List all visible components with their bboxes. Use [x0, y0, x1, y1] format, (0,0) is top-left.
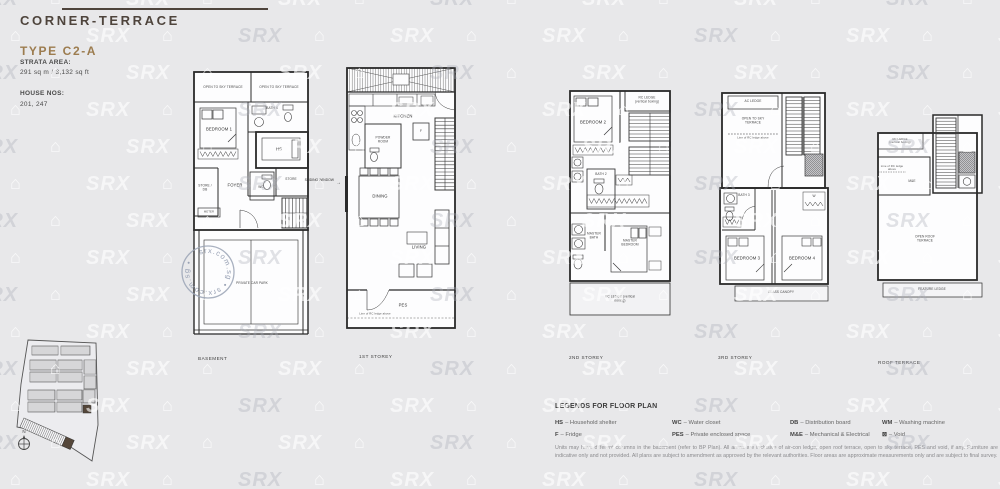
page-title: CORNER-TERRACE [20, 13, 180, 28]
floor-label-3rd-storey: 3RD STOREY [718, 355, 752, 360]
room-label-me: M&E [908, 180, 915, 184]
floor-label-1st-storey: 1ST STOREY [359, 354, 392, 359]
floor-plan-1st-storey: KITCHEN POWDER ROOM F DINING LIVING PES … [343, 60, 461, 366]
room-label-bedroom1: BEDROOM 1 [199, 128, 239, 133]
floor-plan-2nd-storey: BEDROOM 2 RC LEDGE (vertical boxing) BAT… [565, 83, 677, 363]
void-icon: ⊠ [882, 432, 887, 438]
legend-item-wm: WM– Washing machine [882, 420, 945, 426]
floor-plan-sheet: SRX⌂SRX⌂SRX⌂SRX⌂SRX⌂SRX⌂SRX⌂SRX⌂SRX⌂SRX⌂… [0, 0, 1000, 489]
room-label-wardrobe: W [812, 195, 815, 199]
legend-item-db: DB– Distribution board [790, 420, 851, 426]
watermark-layer: SRX⌂SRX⌂SRX⌂SRX⌂SRX⌂SRX⌂SRX⌂SRX⌂SRX⌂SRX⌂… [0, 0, 1000, 489]
north-arrow-icon: N [19, 429, 30, 450]
room-label-master-bath: MASTER BATH [585, 232, 603, 239]
room-label-open-terrace-right: OPEN TO SKY TERRACE [257, 86, 301, 90]
room-label-pes: PES [399, 304, 408, 309]
note-rc-ledge-third: Line of RC ledge above [732, 136, 774, 139]
room-label-open-terrace-left: OPEN TO SKY TERRACE [201, 86, 245, 90]
highlighted-unit-1 [83, 405, 91, 413]
floor-label-roof-terrace: ROOF TERRACE [878, 360, 920, 365]
floor-label-2nd-storey: 2ND STOREY [569, 355, 603, 360]
site-key-plan: N [12, 332, 132, 482]
room-label-ac-ledge: AC LEDGE [745, 100, 762, 104]
room-label-store-db: STORE / DB [198, 184, 213, 191]
room-label-open-roof-terrace: OPEN ROOF TERRACE [908, 235, 942, 242]
site-plan-drawing: N [12, 332, 132, 482]
room-label-powder-room: POWDER ROOM [373, 136, 393, 143]
room-label-rc-ledge-top: RC LEDGE (vertical boxing) [633, 96, 661, 103]
room-label-hs: HS [276, 148, 282, 153]
room-label-car-park: PRIVATE CAR PARK [226, 282, 278, 286]
room-label-dining: DINING [372, 195, 387, 200]
disclaimer-text: Units may have different columns in the … [555, 445, 998, 461]
room-label-bedroom2: BEDROOM 2 [580, 121, 606, 126]
legend-item-void: ⊠– Void [882, 432, 905, 438]
legend-item-pes: PES– Private enclosed space [672, 432, 750, 438]
first-stairs [435, 118, 455, 190]
floor-plan-roof-terrace: RC LEDGE (vertical boxing) Line of RC le… [870, 112, 992, 370]
legend: LEGENDS FOR FLOOR PLAN HS– Household she… [555, 403, 998, 410]
unit-type: TYPE C2-A [20, 44, 97, 58]
legend-item-hs: HS– Household shelter [555, 420, 617, 426]
strata-area-label: STRATA AREA: [20, 59, 71, 66]
note-rc-ledge-first: Line of RC ledge above [353, 312, 397, 315]
first-window [345, 176, 348, 212]
note-rc-ledge-roof: Line of RC ledge above [878, 165, 906, 171]
room-label-bedroom3: BEDROOM 3 [734, 257, 760, 262]
floor-label-basement: BASEMENT [198, 356, 227, 361]
room-label-bath2: BATH 2 [595, 173, 607, 177]
first-storey-drawing [343, 60, 461, 366]
third-storey-drawing [710, 88, 838, 373]
basement-drawing [190, 68, 314, 368]
room-label-store: STORE [285, 178, 296, 182]
note-sliding-window: SLIDING WINDOW [296, 179, 334, 183]
floor-plan-basement: OPEN TO SKY TERRACE OPEN TO SKY TERRACE … [190, 68, 314, 368]
room-label-glass-canopy: GLASS CANOPY [761, 291, 801, 295]
room-label-bath4: BATH 4 [266, 107, 278, 111]
room-label-wc: WC [258, 186, 264, 190]
legend-title: LEGENDS FOR FLOOR PLAN [555, 403, 998, 410]
room-label-living: LIVING [412, 246, 426, 251]
house-nos-value: 201, 247 [20, 101, 48, 108]
floor-plan-3rd-storey: AC LEDGE OPEN TO SKY TERRACE Line of RC … [710, 88, 838, 373]
room-label-bath3: BATH 3 [738, 194, 750, 198]
arrow-right-icon: → [336, 181, 341, 187]
room-label-master-bedroom: MASTER BEDROOM [618, 239, 642, 246]
strata-area-value: 291 sq m / 3,132 sq ft [20, 69, 89, 76]
north-label: N [22, 429, 25, 434]
house-nos-label: HOUSE NOS: [20, 90, 64, 97]
title-rule [62, 8, 268, 10]
room-label-open-terrace: OPEN TO SKY TERRACE [739, 117, 767, 124]
legend-item-wc: WC– Water closet [672, 420, 721, 426]
legend-item-f: F– Fridge [555, 432, 582, 438]
room-label-meter: METER [204, 210, 214, 213]
room-label-foyer: FOYER [228, 184, 243, 189]
room-label-bedroom4: BEDROOM 4 [789, 257, 815, 262]
room-label-rc-ledge-roof: RC LEDGE (vertical boxing) [887, 138, 913, 144]
room-label-feature-ledge: FEATURE LEDGE [907, 288, 957, 292]
room-label-kitchen: KITCHEN [393, 115, 412, 120]
room-label-rc-ledge-bottom: RC LEDGE (vertical boxing) [604, 295, 636, 302]
room-label-fridge: F [420, 130, 422, 134]
legend-item-me: M&E– Mechanical & Electrical [790, 432, 870, 438]
